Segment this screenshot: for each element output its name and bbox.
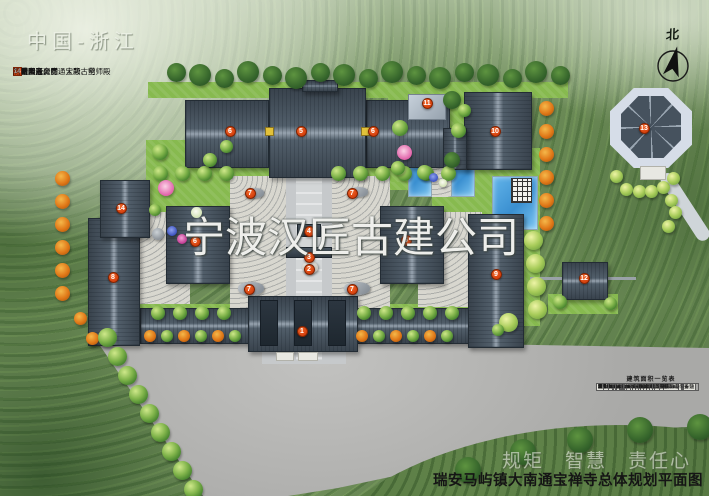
dark-tree-icon	[525, 61, 547, 83]
orange-shrub-icon	[55, 217, 70, 232]
pagoda-steps	[640, 166, 666, 180]
plan-marker-14: 14	[116, 203, 127, 214]
dark-tree-icon	[429, 67, 451, 89]
tree-icon	[401, 306, 415, 320]
tree-icon	[229, 330, 241, 342]
gate-steps-east	[298, 352, 318, 361]
tree-icon	[184, 480, 203, 496]
tree-icon	[373, 330, 385, 342]
orange-shrub-icon	[539, 101, 554, 116]
tree-icon	[458, 104, 471, 117]
orange-shrub-icon	[144, 330, 156, 342]
blue-flower-icon	[429, 173, 438, 182]
gate-steps-west	[276, 352, 294, 361]
plan-marker-5: 5	[296, 126, 307, 137]
gate-bay-east	[328, 300, 346, 346]
dark-tree-icon	[503, 69, 522, 88]
orange-shrub-icon	[390, 330, 402, 342]
table-cell: （一层歇山）	[624, 384, 653, 391]
orange-shrub-icon	[539, 124, 554, 139]
rock-icon	[152, 228, 164, 240]
north-indicator: 北	[650, 24, 696, 90]
tree-icon	[195, 306, 209, 320]
tree-icon	[175, 166, 190, 181]
orange-shrub-icon	[539, 193, 554, 208]
dark-tree-icon	[455, 63, 474, 82]
tree-icon	[445, 306, 459, 320]
main-hall-porch	[302, 80, 338, 92]
tree-icon	[151, 306, 165, 320]
light-tree-icon	[633, 185, 646, 198]
dark-tree-icon	[189, 64, 211, 86]
plan-marker-6: 6	[368, 126, 379, 137]
water-pavilion	[511, 178, 532, 203]
plan-marker-8: 8	[108, 272, 119, 283]
pink-flower-icon	[397, 145, 412, 160]
light-tree-icon	[610, 170, 623, 183]
table-cell: 72	[616, 384, 624, 391]
dark-tree-icon	[407, 66, 426, 85]
tree-icon	[173, 461, 192, 480]
area-table-title: 建筑面积一览表	[596, 374, 706, 383]
region-watermark: 中国-浙江	[27, 25, 139, 54]
tree-icon	[451, 123, 466, 138]
pagoda-roof	[621, 96, 681, 158]
dark-tree-icon	[333, 64, 355, 86]
building-main-hall	[269, 88, 366, 178]
tree-icon	[140, 404, 159, 423]
tree-icon	[553, 295, 567, 309]
light-tree-icon	[645, 185, 658, 198]
light-tree-icon	[662, 220, 675, 233]
tree-icon	[108, 347, 127, 366]
tree-icon	[152, 144, 168, 160]
tree-icon	[203, 153, 217, 167]
light-tree-icon	[665, 194, 678, 207]
dark-tree-icon	[477, 64, 499, 86]
plan-marker-7: 7	[244, 284, 255, 295]
table-cell: 72	[608, 384, 616, 391]
wall-east-of-eco	[608, 277, 636, 280]
tree-icon	[149, 204, 161, 216]
orange-shrub-icon	[539, 170, 554, 185]
orange-shrub-icon	[74, 312, 87, 325]
light-tree-icon	[620, 183, 633, 196]
orange-shrub-icon	[539, 216, 554, 231]
pink-flower-icon	[158, 180, 174, 196]
orange-shrub-icon	[55, 240, 70, 255]
tree-icon	[375, 166, 390, 181]
tree-icon	[151, 423, 170, 442]
plan-marker-7: 7	[347, 284, 358, 295]
plan-marker-9: 9	[491, 269, 502, 280]
tree-icon	[195, 330, 207, 342]
plan-marker-6: 6	[225, 126, 236, 137]
blue-flower-icon	[167, 226, 177, 236]
plan-marker-7: 7	[347, 188, 358, 199]
tree-icon	[392, 120, 408, 136]
tree-icon	[219, 166, 234, 181]
tree-icon	[441, 330, 453, 342]
tree-icon	[357, 306, 371, 320]
dark-tree-icon	[627, 417, 653, 443]
plan-marker-2: 2	[304, 264, 315, 275]
dark-tree-icon	[311, 63, 330, 82]
plan-marker-11: 11	[422, 98, 433, 109]
table-row: 凉亭7272（一层歇山）	[596, 383, 653, 391]
tree-icon	[331, 166, 346, 181]
temple-master-plan: 1234566667777891011121314 中国-浙江 宁波汉匠古建公司…	[0, 0, 709, 496]
company-watermark: 宁波汉匠古建公司	[183, 204, 519, 265]
plan-marker-13: 13	[639, 123, 650, 134]
tree-icon	[604, 297, 617, 310]
light-tree-icon	[524, 231, 543, 250]
plan-title: 瑞安马屿镇大南通宝禅寺总体规划平面图	[433, 469, 703, 490]
legend-label: 厕所	[13, 66, 28, 77]
tree-icon	[407, 330, 419, 342]
tree-icon	[161, 330, 173, 342]
tree-icon	[391, 161, 405, 175]
north-arrow-icon	[650, 38, 696, 88]
white-flower-icon	[439, 179, 447, 187]
dark-tree-icon	[687, 414, 709, 440]
light-tree-icon	[527, 277, 546, 296]
dark-tree-icon	[263, 66, 282, 85]
dark-tree-icon	[551, 66, 570, 85]
dark-tree-icon	[237, 61, 259, 83]
dark-tree-icon	[167, 63, 186, 82]
orange-shrub-icon	[55, 263, 70, 278]
plan-marker-7: 7	[245, 188, 256, 199]
orange-shrub-icon	[356, 330, 368, 342]
orange-shrub-icon	[86, 332, 99, 345]
plan-marker-10: 10	[490, 126, 501, 137]
table-cell: 凉亭	[597, 384, 609, 391]
dark-tree-icon	[359, 69, 378, 88]
light-tree-icon	[528, 300, 547, 319]
tree-icon	[423, 306, 437, 320]
dark-tree-icon	[444, 152, 460, 168]
dark-tree-icon	[381, 61, 403, 83]
tree-icon	[379, 306, 393, 320]
tree-icon	[162, 442, 181, 461]
tree-icon	[173, 306, 187, 320]
light-tree-icon	[667, 172, 680, 185]
plan-marker-12: 12	[579, 273, 590, 284]
orange-shrub-icon	[55, 194, 70, 209]
tree-icon	[492, 324, 504, 336]
tree-icon	[353, 166, 368, 181]
orange-shrub-icon	[212, 330, 224, 342]
dark-tree-icon	[285, 67, 307, 89]
corridor-connector-west	[265, 127, 274, 136]
tree-icon	[220, 140, 233, 153]
tree-icon	[129, 385, 148, 404]
tree-icon	[217, 306, 231, 320]
orange-shrub-icon	[55, 286, 70, 301]
tree-icon	[197, 166, 212, 181]
orange-shrub-icon	[178, 330, 190, 342]
gate-bay-west	[260, 300, 278, 346]
tree-icon	[153, 166, 168, 181]
light-tree-icon	[669, 206, 682, 219]
gate-bay-center	[294, 300, 312, 346]
plan-marker-1: 1	[297, 326, 308, 337]
dark-tree-icon	[215, 69, 234, 88]
light-tree-icon	[526, 254, 545, 273]
orange-shrub-icon	[539, 147, 554, 162]
orange-shrub-icon	[424, 330, 436, 342]
tree-icon	[118, 366, 137, 385]
tree-icon	[98, 328, 117, 347]
orange-shrub-icon	[55, 171, 70, 186]
